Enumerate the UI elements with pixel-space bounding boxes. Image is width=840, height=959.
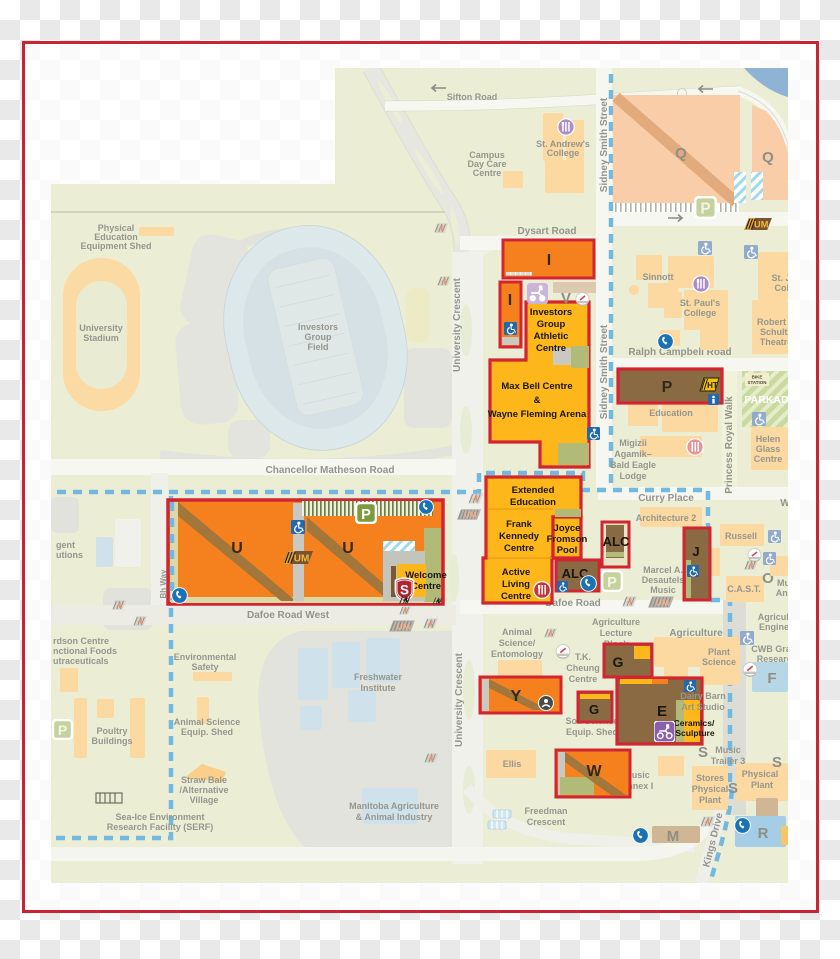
svg-text:Agriculture: Agriculture xyxy=(669,628,723,639)
svg-text:Equipment Shed: Equipment Shed xyxy=(80,241,151,251)
svg-text:Plant: Plant xyxy=(708,647,730,657)
svg-text:Institute: Institute xyxy=(361,683,396,693)
svg-text:Science: Science xyxy=(702,657,736,667)
svg-text:College: College xyxy=(684,308,717,318)
svg-text:Architecture 2: Architecture 2 xyxy=(636,513,697,523)
svg-text:Q: Q xyxy=(675,145,687,162)
svg-text:Schultz: Schultz xyxy=(760,327,793,337)
svg-text:Curry Place: Curry Place xyxy=(638,493,694,504)
svg-text:Education: Education xyxy=(510,497,556,508)
svg-text:Frank: Frank xyxy=(506,519,533,530)
svg-text:Centre: Centre xyxy=(569,674,598,684)
svg-text:Max Bell Centre: Max Bell Centre xyxy=(501,381,572,392)
svg-text:Centre: Centre xyxy=(473,168,502,178)
svg-text:C.A.S.T.: C.A.S.T. xyxy=(727,584,761,594)
svg-text:Cheung: Cheung xyxy=(566,663,600,673)
svg-text:Living: Living xyxy=(502,579,530,590)
svg-text:S: S xyxy=(698,744,708,761)
svg-text:Research Facility (SERF): Research Facility (SERF) xyxy=(107,822,214,832)
svg-text:Glass: Glass xyxy=(756,444,781,454)
svg-text:Dairy Barn: Dairy Barn xyxy=(680,691,726,701)
svg-text:Plant: Plant xyxy=(751,780,773,790)
svg-text:Kennedy: Kennedy xyxy=(499,531,540,542)
svg-text:Desautels: Desautels xyxy=(642,575,685,585)
svg-text:Sculpture: Sculpture xyxy=(675,728,714,738)
svg-text:Sidney Smith Street: Sidney Smith Street xyxy=(599,97,610,192)
svg-text:Plant: Plant xyxy=(699,795,721,805)
svg-text:St. Paul's: St. Paul's xyxy=(680,298,720,308)
svg-text:Princess Royal Walk: Princess Royal Walk xyxy=(724,396,735,494)
svg-text:F: F xyxy=(767,670,776,687)
svg-text:Centre: Centre xyxy=(754,454,783,464)
svg-text:Crescent: Crescent xyxy=(527,817,566,827)
svg-text:Joyce: Joyce xyxy=(554,523,581,534)
svg-text:Village: Village xyxy=(190,795,219,805)
svg-text:Sinnott: Sinnott xyxy=(643,272,674,282)
svg-text:STATION: STATION xyxy=(747,380,766,385)
svg-text:Investors: Investors xyxy=(530,307,572,318)
svg-text:T.K.: T.K. xyxy=(575,652,591,662)
svg-text:Active: Active xyxy=(502,567,531,578)
svg-text:Extended: Extended xyxy=(512,485,555,496)
svg-text:Group: Group xyxy=(305,332,332,342)
svg-text:Ellis: Ellis xyxy=(503,759,522,769)
svg-text:Science/: Science/ xyxy=(499,638,536,648)
svg-text:J: J xyxy=(692,544,699,559)
svg-text:Lecture: Lecture xyxy=(600,628,633,638)
svg-text:St. J: St. J xyxy=(771,273,790,283)
svg-text:Y: Y xyxy=(511,688,522,705)
svg-text:Music: Music xyxy=(650,585,676,595)
svg-text:Centre: Centre xyxy=(504,543,534,554)
svg-text:University Crescent: University Crescent xyxy=(454,652,465,747)
svg-text:Agriculture: Agriculture xyxy=(592,617,640,627)
svg-text:Stadium: Stadium xyxy=(83,333,119,343)
svg-text:I: I xyxy=(508,292,512,309)
svg-text:Fromson: Fromson xyxy=(547,534,588,545)
svg-text:Russell: Russell xyxy=(725,531,757,541)
svg-text:G: G xyxy=(613,654,624,670)
svg-text:Buildings: Buildings xyxy=(92,736,133,746)
svg-text:Field: Field xyxy=(307,342,328,352)
svg-text:Centre: Centre xyxy=(501,591,531,602)
svg-text:Freedman: Freedman xyxy=(524,806,567,816)
svg-text:Entomology: Entomology xyxy=(491,649,543,659)
svg-text:Chancellor Matheson Road: Chancellor Matheson Road xyxy=(266,465,395,476)
svg-text:utions: utions xyxy=(56,550,83,560)
svg-text:Equip. Shed: Equip. Shed xyxy=(181,727,233,737)
svg-text:Marcel A.: Marcel A. xyxy=(643,565,683,575)
svg-text:HT: HT xyxy=(707,381,718,390)
svg-text:Q: Q xyxy=(762,149,774,166)
svg-text:utraceuticals: utraceuticals xyxy=(53,656,109,666)
svg-text:Dafoe Road West: Dafoe Road West xyxy=(247,610,330,621)
svg-text:Athletic: Athletic xyxy=(534,331,569,342)
svg-text:Stores: Stores xyxy=(696,773,724,783)
svg-text:Animal: Animal xyxy=(502,627,532,637)
svg-text:University Crescent: University Crescent xyxy=(452,277,463,372)
svg-text:W: W xyxy=(586,763,602,780)
svg-text:gent: gent xyxy=(56,540,75,550)
svg-text:Theatre: Theatre xyxy=(760,337,793,347)
svg-text:Sifton Road: Sifton Road xyxy=(447,92,498,102)
svg-text:rdson Centre: rdson Centre xyxy=(53,636,109,646)
svg-text:Music: Music xyxy=(715,745,741,755)
svg-text:Freshwater: Freshwater xyxy=(354,672,403,682)
svg-text:Sea-Ice Environment: Sea-Ice Environment xyxy=(115,812,204,822)
svg-text:ALC: ALC xyxy=(603,534,630,549)
svg-text:Bald Eagle: Bald Eagle xyxy=(610,460,656,470)
svg-text:Ceramics/: Ceramics/ xyxy=(674,718,715,728)
svg-text:Migizii: Migizii xyxy=(619,438,647,448)
svg-text:P: P xyxy=(662,379,673,396)
svg-text:G: G xyxy=(589,702,599,717)
svg-text:Dysart Road: Dysart Road xyxy=(518,226,577,237)
svg-text:M: M xyxy=(667,828,680,845)
svg-text:Agamik–: Agamik– xyxy=(614,449,652,459)
svg-text:Group: Group xyxy=(537,319,566,330)
svg-text:Animal Science: Animal Science xyxy=(174,717,241,727)
svg-text:Lodge: Lodge xyxy=(620,471,647,481)
svg-text:University: University xyxy=(79,323,123,333)
svg-text:Environmental: Environmental xyxy=(174,652,237,662)
svg-text:S: S xyxy=(728,780,738,797)
svg-text:Education: Education xyxy=(649,408,693,418)
svg-text:U: U xyxy=(342,540,354,557)
svg-text:Centre: Centre xyxy=(536,343,566,354)
svg-text:Safety: Safety xyxy=(191,662,218,672)
svg-text:R: R xyxy=(758,825,769,842)
svg-text:Wayne Fleming Arena: Wayne Fleming Arena xyxy=(488,409,587,420)
svg-text:U: U xyxy=(231,540,243,557)
svg-text:E: E xyxy=(657,703,667,720)
svg-text:Sidney Smith Street: Sidney Smith Street xyxy=(599,324,610,419)
svg-text:I: I xyxy=(547,252,551,269)
svg-text:/Alternative: /Alternative xyxy=(179,785,228,795)
svg-text:Centre: Centre xyxy=(411,581,441,592)
svg-text:&: & xyxy=(534,395,541,406)
svg-text:Helen: Helen xyxy=(756,434,781,444)
svg-text:PARKADE: PARKADE xyxy=(744,394,795,406)
svg-text:& Animal Industry: & Animal Industry xyxy=(356,812,433,822)
svg-text:Straw Bale: Straw Bale xyxy=(181,775,227,785)
svg-text:Physical: Physical xyxy=(692,784,729,794)
svg-text:BIKE: BIKE xyxy=(752,375,763,380)
svg-text:Trailer 3: Trailer 3 xyxy=(711,756,746,766)
svg-text:Investors: Investors xyxy=(298,322,338,332)
svg-text:Pool: Pool xyxy=(557,545,578,556)
svg-text:nctional Foods: nctional Foods xyxy=(53,646,117,656)
svg-text:College: College xyxy=(547,148,580,158)
svg-text:Manitoba Agriculture: Manitoba Agriculture xyxy=(349,801,439,811)
svg-text:Poultry: Poultry xyxy=(96,726,127,736)
svg-text:S: S xyxy=(772,754,782,771)
svg-text:Art Studio: Art Studio xyxy=(681,702,725,712)
svg-text:Equip. Shed: Equip. Shed xyxy=(566,727,618,737)
